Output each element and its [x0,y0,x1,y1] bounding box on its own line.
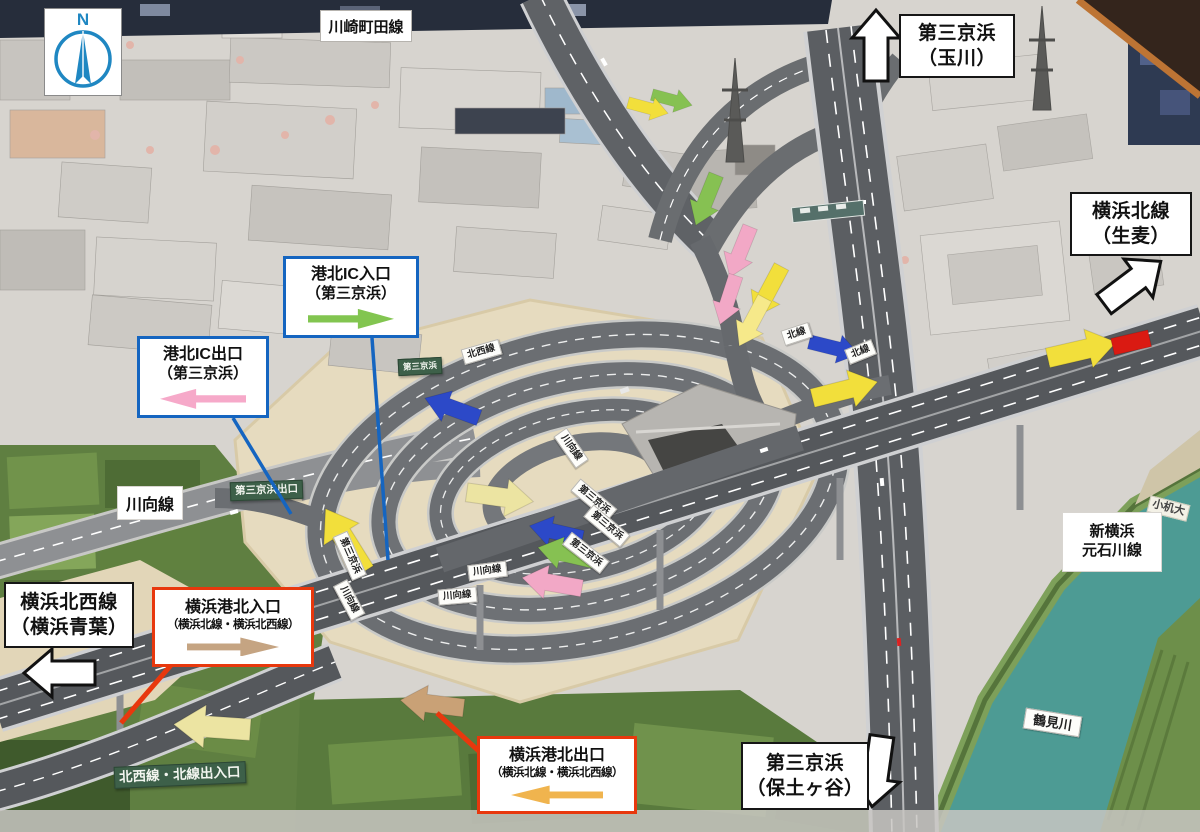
label-yokohama-kohoku-entrance: 横浜港北入口 （横浜北線・横浜北西線） [152,587,314,667]
label-text: （玉川） [918,46,996,71]
label-text: （生麦） [1092,224,1170,249]
label-text: 第三京浜 [766,751,844,776]
label-text: 第三京浜 [918,21,996,46]
label-text: 新横浜 [1089,523,1134,542]
label-text: 横浜北西線 [20,590,118,615]
pink-left-arrow-icon [160,389,246,409]
label-kawasaki-machida-line: 川崎町田線 [320,10,412,42]
label-yokohama-kohoku-exit: 横浜港北出口 （横浜北線・横浜北西線） [477,736,637,814]
tan-right-arrow-icon [187,637,279,656]
label-kohoku-ic-exit: 港北IC出口 （第三京浜） [137,336,269,418]
label-text: （横浜青葉） [10,615,127,640]
label-text: 横浜北線 [1092,199,1170,224]
orange-left-arrow-icon [511,785,603,804]
label-text: 元石川線 [1082,542,1142,561]
label-text: 横浜港北出口 [509,746,605,766]
green-right-arrow-icon [308,309,394,329]
label-text: （第三京浜） [158,365,248,384]
green-sign-daisan-keihin: 第三京浜 [398,357,443,376]
label-text: 横浜港北入口 [185,598,281,618]
label-daisan-keihin-hodogaya: 第三京浜 （保土ヶ谷） [741,742,869,810]
label-yokohama-hokusei-line-aoba: 横浜北西線 （横浜青葉） [4,582,134,648]
compass-rose: N [44,8,122,96]
label-yokohama-kita-line-namamugi: 横浜北線 （生麦） [1070,192,1192,256]
label-text: 港北IC入口 [311,265,391,285]
label-text: （横浜北線・横浜北西線） [491,766,623,781]
label-kohoku-ic-entrance: 港北IC入口 （第三京浜） [283,256,419,338]
compass-north-label: N [77,11,89,28]
label-shin-yokohama-motoishikawa-line: 新横浜 元石川線 [1062,512,1162,572]
annotated-interchange-model-photo: 川向線 川向線 川向線 川向線 第三京浜 第三京浜 第三京浜 第三京浜 北線 北… [0,0,1200,832]
label-text: （横浜北線・横浜北西線） [167,618,299,633]
label-daisan-keihin-tamagawa: 第三京浜 （玉川） [899,14,1015,78]
label-text: 川向線 [126,491,174,515]
label-text: 川崎町田線 [328,16,403,37]
label-text: （第三京浜） [306,285,396,304]
label-text: 港北IC出口 [163,345,243,365]
label-text: （保土ヶ谷） [746,776,863,801]
green-sign-daisan-keihin-exit: 第三京浜出口 [230,480,304,501]
compass-needle-icon [52,28,114,90]
label-kawamuki-line: 川向線 [117,486,183,520]
